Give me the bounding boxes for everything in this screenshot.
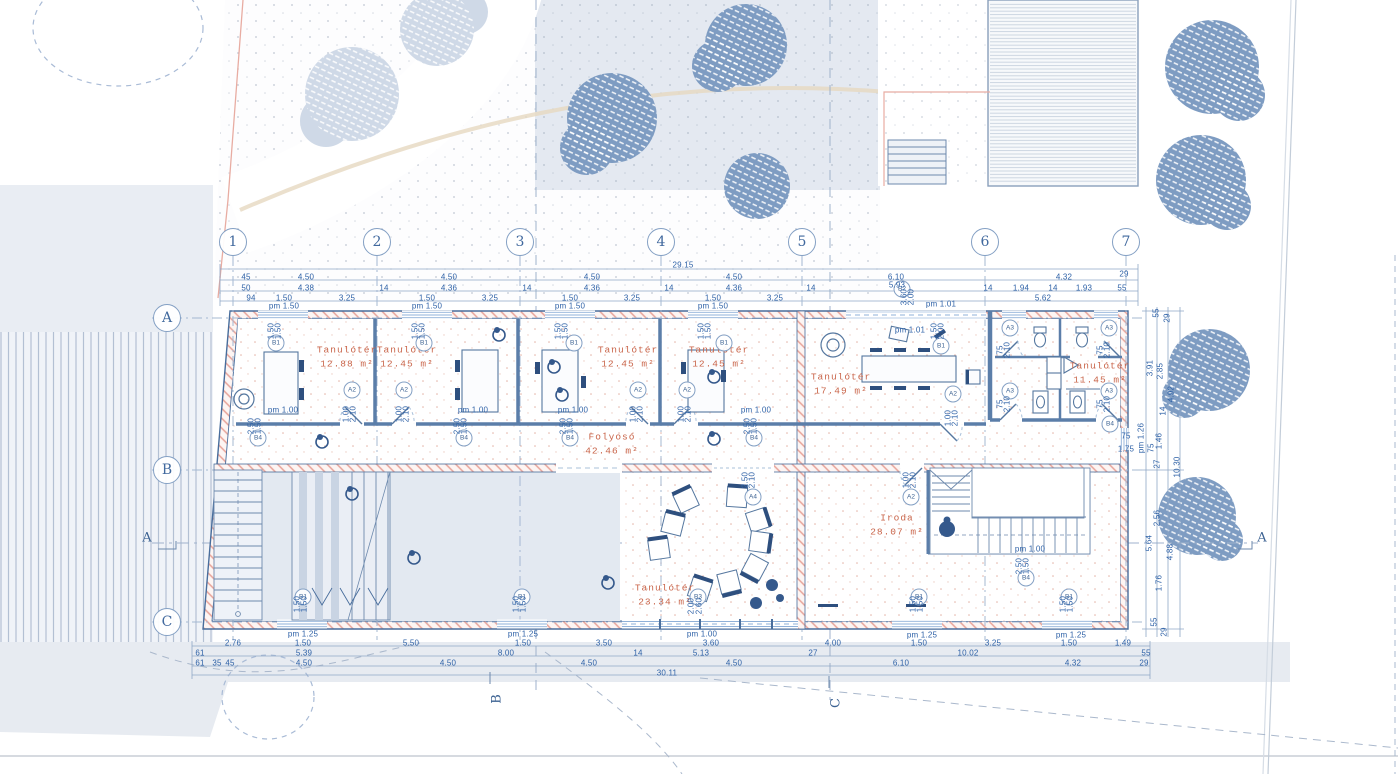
hall-floor: [213, 472, 620, 621]
side-window: [1120, 428, 1129, 450]
bleacher-seating: [292, 472, 390, 620]
floor-plan-drawing: 1234567 ABC AABC Tanulótér 12.88 m² Tanu…: [0, 0, 1398, 774]
neighbor-building: [878, 0, 1138, 186]
site-plan-svg: [0, 0, 1398, 774]
stairs-left: [214, 470, 262, 620]
exterior-stairs-icon: [888, 140, 946, 184]
stairs-right: [930, 468, 1090, 554]
